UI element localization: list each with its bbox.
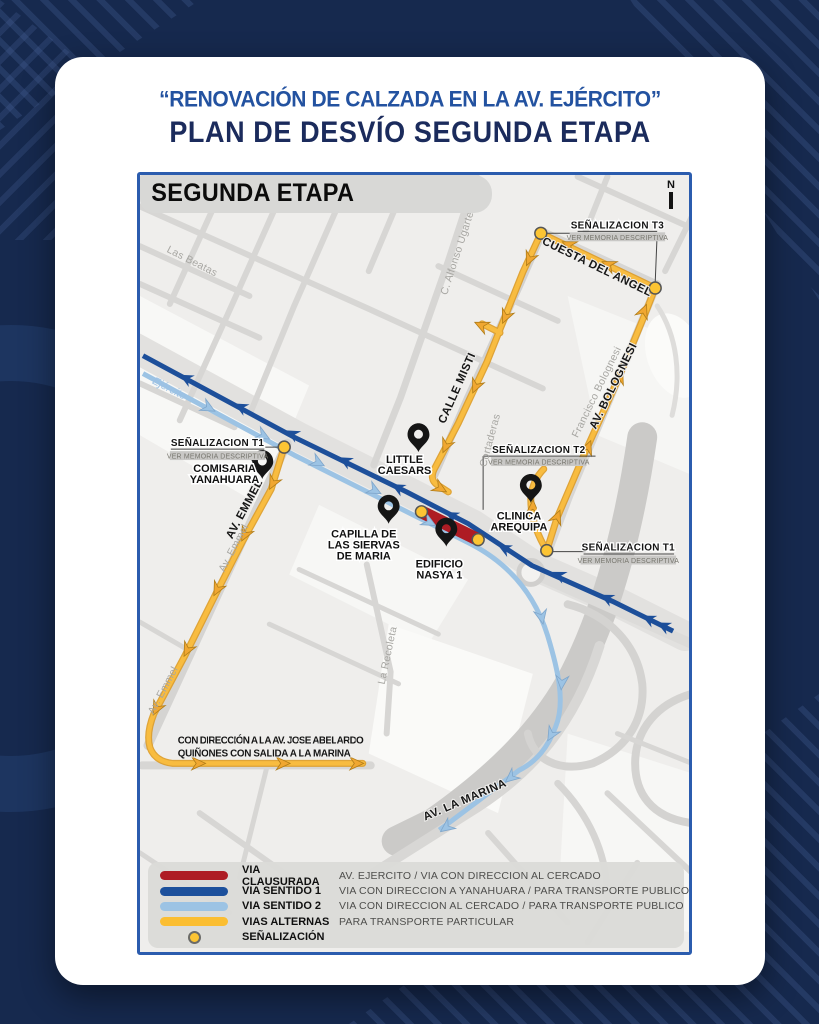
legend-row-via-clausurada: VIA CLAUSURADA AV. EJERCITO / VIA CON DI… [160, 868, 674, 883]
legend-description: PARA TRANSPORTE PARTICULAR [339, 916, 514, 928]
legend-description: VIA CON DIRECCION AL CERCADO / PARA TRAN… [339, 900, 684, 912]
legend-row-senalizacion: SEÑALIZACIÓN [160, 930, 674, 945]
compass: N [662, 180, 680, 209]
signal-dot-t1-right [541, 545, 553, 557]
signal-t1-right-subtitle: VER MEMORIA DESCRIPTIVA [578, 558, 680, 565]
compass-needle-icon [669, 192, 673, 209]
signal-t1-left-title: SEÑALIZACION T1 [171, 438, 265, 449]
page-title: PLAN DE DESVÍO SEGUNDA ETAPA [55, 115, 765, 149]
map-svg: Las Beatas C. Alfonso Ugarte CUESTA DEL … [140, 175, 689, 952]
poi-nasya-line2: NASYA 1 [416, 569, 462, 581]
legend-swatch-via-sentido-2 [160, 902, 228, 911]
signal-dot-t1-left [278, 441, 290, 453]
street-cuesta-del-angel: CUESTA DEL ANGEL [540, 236, 654, 300]
legend-row-vias-alternas: VIAS ALTERNAS PARA TRANSPORTE PARTICULAR [160, 914, 674, 929]
poi-clinica-line2: AREQUIPA [490, 522, 547, 534]
legend-label: SEÑALIZACIÓN [242, 931, 339, 943]
signal-dot-closure-end [472, 534, 484, 546]
direction-note-line2: QUIÑONES CON SALIDA A LA MARINA [178, 748, 351, 759]
compass-n-label: N [662, 180, 680, 191]
pin-little-caesars [408, 423, 430, 452]
legend-label: VIAS ALTERNAS [242, 916, 339, 928]
signal-dot-icon [188, 931, 201, 944]
signal-t1-right-title: SEÑALIZACION T1 [582, 543, 676, 554]
signal-t1-left-subtitle: VER MEMORIA DESCRIPTIVA [167, 454, 269, 461]
stage-header: SEGUNDA ETAPA [140, 175, 492, 213]
quote-title: “RENOVACIÓN DE CALZADA EN LA AV. EJÉRCIT… [55, 87, 765, 112]
signal-t3-subtitle: VER MEMORIA DESCRIPTIVA [567, 235, 669, 242]
pin-capilla [378, 495, 400, 524]
legend-description: VIA CON DIRECCION A YANAHUARA / PARA TRA… [339, 885, 689, 897]
map-canvas: Las Beatas C. Alfonso Ugarte CUESTA DEL … [137, 172, 692, 955]
legend-label: VIA SENTIDO 2 [242, 900, 339, 912]
page: { "header": { "quote_title": "“RENOVACIÓ… [0, 0, 819, 1024]
poi-little-caesars-line2: CAESARS [378, 465, 431, 477]
direction-note-line1: CON DIRECCIÓN A LA AV. JOSE ABELARDO [178, 735, 364, 747]
legend-swatch-via-sentido-1 [160, 887, 228, 896]
signal-dot-closure-start [415, 506, 427, 518]
poi-capilla-line3: DE MARIA [337, 551, 391, 563]
poi-comisaria-line2: YANAHUARA [190, 474, 260, 486]
legend-row-via-sentido-2: VIA SENTIDO 2 VIA CON DIRECCION AL CERCA… [160, 899, 674, 914]
legend-swatch-vias-alternas [160, 917, 228, 926]
legend-row-via-sentido-1: VIA SENTIDO 1 VIA CON DIRECCION A YANAHU… [160, 883, 674, 898]
legend-swatch-via-clausurada [160, 871, 228, 880]
legend-swatch-senalizacion [160, 931, 228, 944]
legend-label: VIA SENTIDO 1 [242, 885, 339, 897]
stage-label: SEGUNDA ETAPA [140, 175, 354, 212]
signal-t2-subtitle: VER MEMORIA DESCRIPTIVA [488, 460, 590, 467]
map-legend: VIA CLAUSURADA AV. EJERCITO / VIA CON DI… [148, 862, 684, 948]
signal-t3-title: SEÑALIZACION T3 [571, 220, 665, 231]
legend-description: AV. EJERCITO / VIA CON DIRECCION AL CERC… [339, 870, 601, 882]
signal-t2-title: SEÑALIZACION T2 [492, 445, 586, 456]
poster-card: “RENOVACIÓN DE CALZADA EN LA AV. EJÉRCIT… [55, 57, 765, 985]
